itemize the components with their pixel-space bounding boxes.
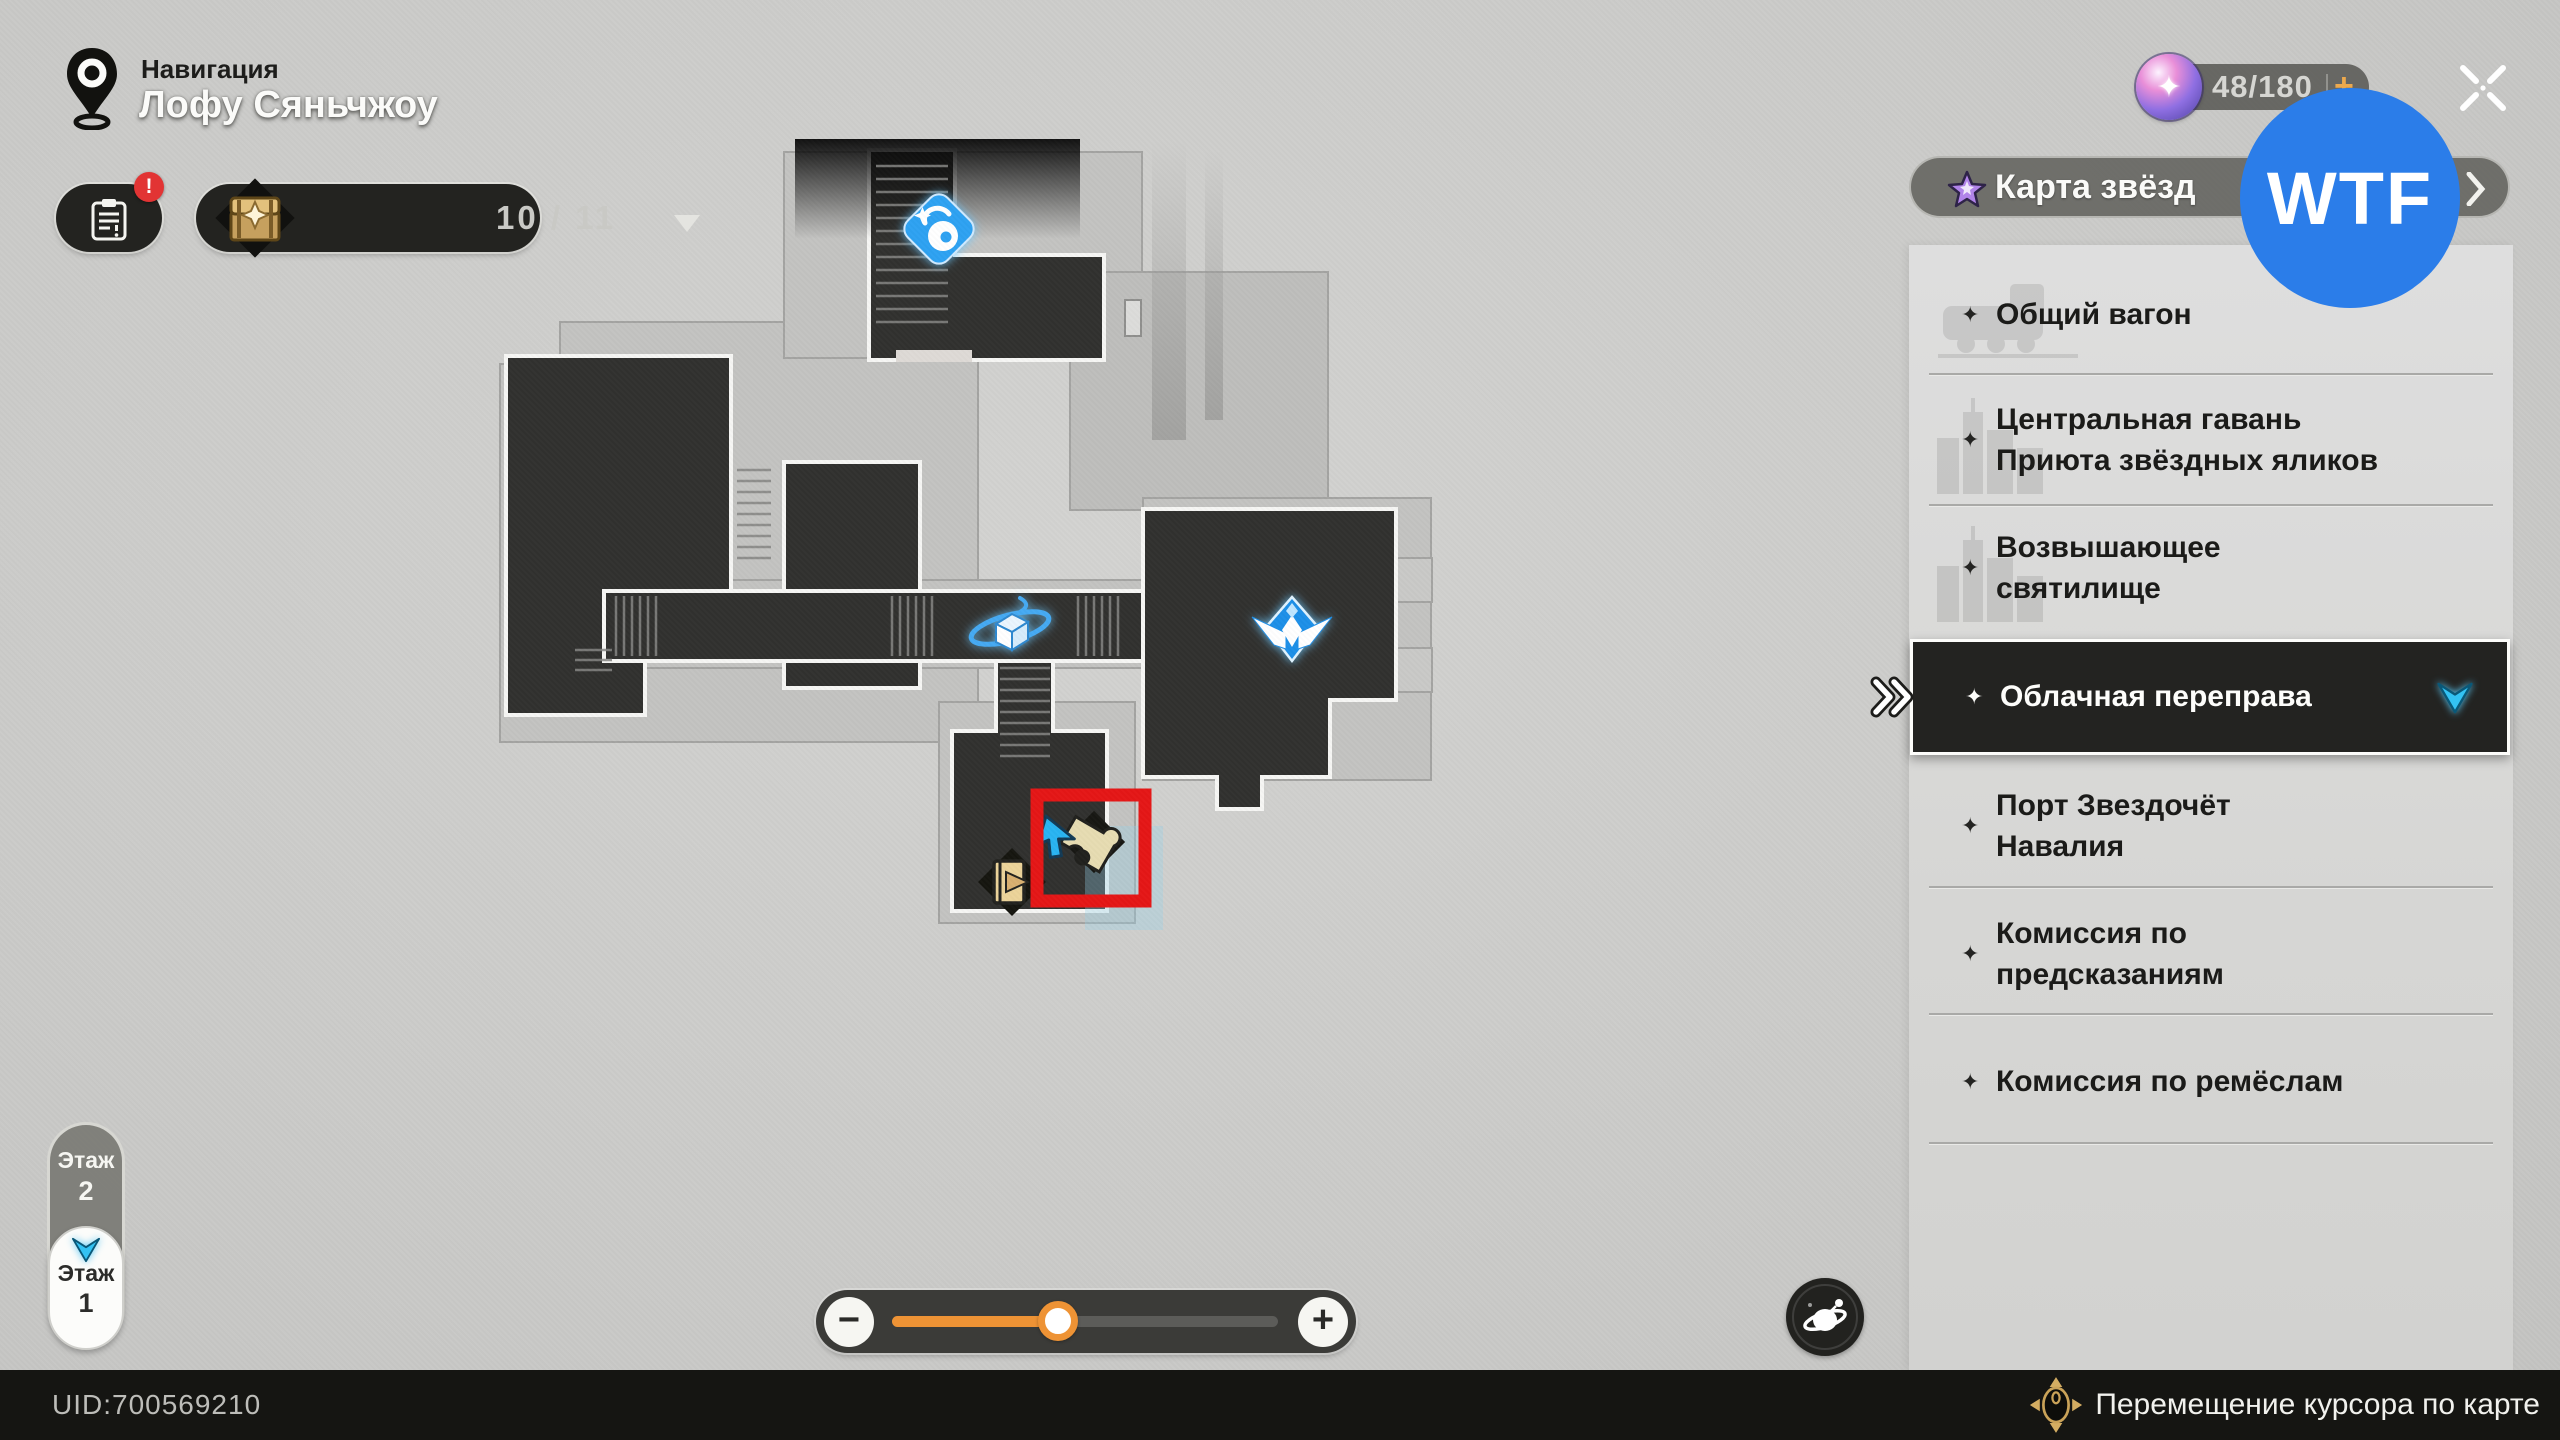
floor-1-number: 1 xyxy=(50,1288,122,1319)
sidebar-item-artisanship-commission[interactable]: ✦ Комиссия по ремёслам xyxy=(1909,1050,2513,1114)
sidebar-divider xyxy=(1929,1013,2493,1015)
sidebar-divider xyxy=(1929,1142,2493,1144)
zoom-slider-fill xyxy=(892,1316,1058,1327)
nav-label: Навигация xyxy=(141,54,279,85)
sidebar-item-label: Возвышающее xyxy=(1909,527,2513,568)
chevron-right-icon xyxy=(2466,172,2486,206)
floor-2-number: 2 xyxy=(50,1176,122,1207)
sparkle-icon: ✦ xyxy=(1961,555,1979,581)
location-pin-icon xyxy=(64,46,120,130)
page-title: Лофу Сяньчжоу xyxy=(139,84,438,127)
current-location-arrow-icon xyxy=(2435,680,2475,716)
sidebar-item-label: святилище xyxy=(1909,568,2513,609)
orb-star-icon: ✦ xyxy=(2156,70,2181,105)
wtf-logo-badge: WTF xyxy=(2240,88,2460,308)
alert-badge: ! xyxy=(134,172,164,202)
floor-2-word: Этаж xyxy=(50,1147,122,1174)
zoom-in-button[interactable]: + xyxy=(1298,1297,1348,1347)
sidebar-item-common-carriage[interactable]: ✦ Общий вагон xyxy=(1909,283,2513,347)
close-button[interactable] xyxy=(2455,60,2511,116)
status-bar: UID:700569210 Перемещение курсора по кар… xyxy=(0,1370,2560,1440)
sidebar-item-label: Общий вагон xyxy=(1909,283,2513,347)
sidebar-item-stargazer-navalia[interactable]: ✦ Порт Звездочёт Навалия xyxy=(1909,785,2513,867)
gamepad-cursor-icon xyxy=(1868,672,1920,722)
chest-icon xyxy=(229,196,281,242)
chevron-down-icon xyxy=(674,215,700,232)
sidebar-divider xyxy=(1929,886,2493,888)
uid-label: UID:700569210 xyxy=(52,1389,261,1421)
sparkle-icon: ✦ xyxy=(1961,941,1979,967)
planet-icon xyxy=(1801,1296,1849,1338)
sidebar-item-central-harbor[interactable]: ✦ Центральная гавань Приюта звёздных яли… xyxy=(1909,399,2513,481)
sidebar-item-label: Комиссия по xyxy=(1909,913,2513,954)
current-floor-arrow-icon xyxy=(70,1236,102,1264)
sidebar-item-label: Центральная гавань xyxy=(1909,399,2513,440)
sidebar-item-label: Комиссия по ремёслам xyxy=(1909,1050,2513,1114)
sidebar-item-exalting-sanctum[interactable]: ✦ Возвышающее святилище xyxy=(1909,527,2513,609)
sidebar-divider xyxy=(1929,373,2493,375)
zoom-slider-knob[interactable] xyxy=(1038,1301,1078,1341)
star-map-header-label: Карта звёзд xyxy=(1995,168,2196,207)
sidebar-item-label: Приюта звёздных яликов xyxy=(1909,440,2513,481)
sparkle-icon: ✦ xyxy=(1961,1069,1979,1095)
sidebar-item-label: Порт Звездочёт xyxy=(1909,785,2513,826)
sidebar-item-label: предсказаниям xyxy=(1909,954,2513,995)
sparkle-icon: ✦ xyxy=(1961,302,1979,328)
sparkle-icon: ✦ xyxy=(1961,427,1979,453)
floor-1-word: Этаж xyxy=(50,1260,122,1287)
mouse-icon xyxy=(2029,1375,2083,1435)
sidebar-divider xyxy=(1929,504,2493,506)
wtf-text: WTF xyxy=(2267,156,2433,241)
sidebar-item-cloudford-selected[interactable]: ✦ Облачная переправа xyxy=(1910,639,2510,755)
sparkle-icon: ✦ xyxy=(1965,684,1983,710)
hint-label: Перемещение курсора по карте xyxy=(2095,1388,2540,1422)
sidebar-item-label: Навалия xyxy=(1909,826,2513,867)
chest-count: 10 / 11 xyxy=(496,184,616,252)
universe-map-button[interactable] xyxy=(1786,1278,1864,1356)
trailblaze-power-icon: ✦ xyxy=(2136,54,2202,120)
sidebar-item-label: Облачная переправа xyxy=(1913,642,2507,752)
star-icon xyxy=(1947,169,1987,209)
floor-1-button-selected[interactable]: Этаж 1 xyxy=(48,1226,124,1350)
sidebar-item-divination-commission[interactable]: ✦ Комиссия по предсказаниям xyxy=(1909,913,2513,995)
sparkle-icon: ✦ xyxy=(1961,813,1979,839)
zoom-out-button[interactable]: − xyxy=(824,1297,874,1347)
clipboard-icon xyxy=(91,197,127,241)
